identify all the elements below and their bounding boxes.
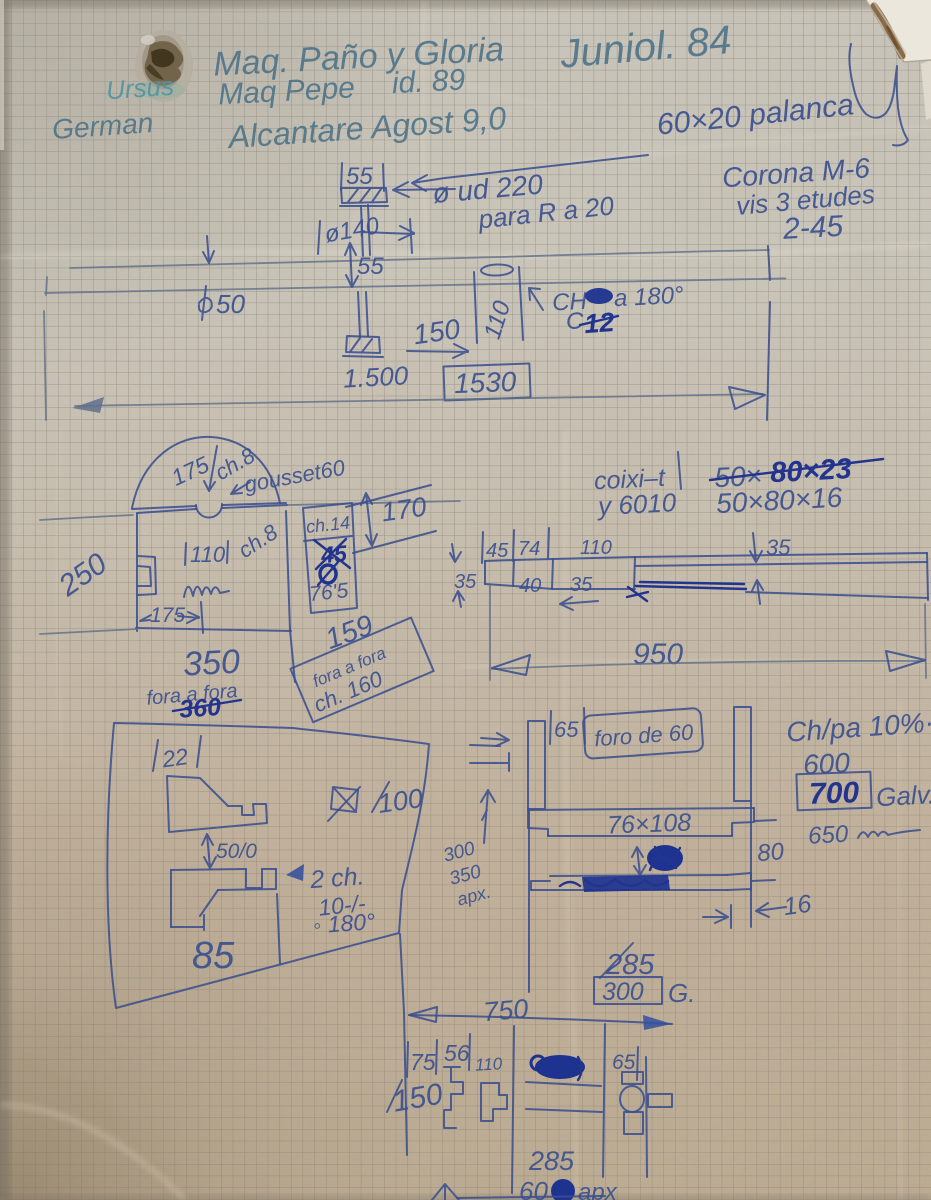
- svg-text:950: 950: [633, 638, 683, 671]
- svg-text:35: 35: [766, 535, 791, 560]
- svg-text:C: C: [566, 308, 584, 335]
- svg-text:55: 55: [357, 253, 384, 280]
- svg-text:350: 350: [182, 643, 241, 684]
- svg-text:16: 16: [782, 890, 814, 922]
- svg-text:85: 85: [192, 935, 235, 977]
- svg-text:2-45: 2-45: [781, 210, 844, 246]
- svg-text:56: 56: [444, 1040, 470, 1066]
- svg-text:65: 65: [554, 717, 579, 742]
- svg-text:80: 80: [756, 838, 786, 867]
- svg-text:110: 110: [190, 542, 226, 567]
- svg-text:id. 89: id. 89: [391, 63, 466, 100]
- svg-text:1530: 1530: [453, 366, 517, 399]
- svg-text:Galv.: Galv.: [875, 779, 931, 812]
- svg-text:700: 700: [809, 776, 860, 811]
- svg-text:Ursus: Ursus: [105, 71, 175, 106]
- svg-text:50: 50: [216, 289, 245, 319]
- svg-text:76×108: 76×108: [607, 809, 692, 840]
- svg-text:110: 110: [475, 1054, 504, 1074]
- svg-text:110: 110: [580, 537, 612, 559]
- svg-text:22: 22: [160, 743, 190, 772]
- svg-text:a 180°: a 180°: [613, 282, 684, 313]
- svg-text:750: 750: [482, 993, 530, 1027]
- svg-text:300: 300: [602, 978, 644, 1006]
- svg-text:65: 65: [612, 1051, 636, 1074]
- svg-text:50/0: 50/0: [216, 840, 257, 863]
- svg-text:1.500: 1.500: [342, 360, 409, 393]
- svg-text:285: 285: [528, 1146, 575, 1176]
- svg-text:650: 650: [807, 821, 849, 850]
- svg-text:y 6010: y 6010: [595, 487, 677, 521]
- svg-text:75: 75: [410, 1049, 436, 1075]
- svg-text:35: 35: [454, 571, 477, 593]
- svg-text:35: 35: [570, 574, 593, 596]
- svg-text:G.: G.: [668, 978, 695, 1008]
- svg-text:40: 40: [519, 575, 541, 597]
- svg-text:600: 600: [802, 747, 851, 780]
- svg-text:◦ 180°: ◦ 180°: [312, 908, 376, 938]
- svg-text:55: 55: [346, 163, 373, 190]
- svg-text:100: 100: [376, 783, 425, 819]
- svg-text:76'5: 76'5: [308, 579, 350, 606]
- svg-text:170: 170: [379, 491, 428, 527]
- svg-text:74: 74: [518, 538, 540, 560]
- svg-text:45: 45: [486, 540, 509, 562]
- svg-text:50×80×16: 50×80×16: [715, 482, 843, 520]
- svg-text:2 ch.: 2 ch.: [308, 862, 365, 894]
